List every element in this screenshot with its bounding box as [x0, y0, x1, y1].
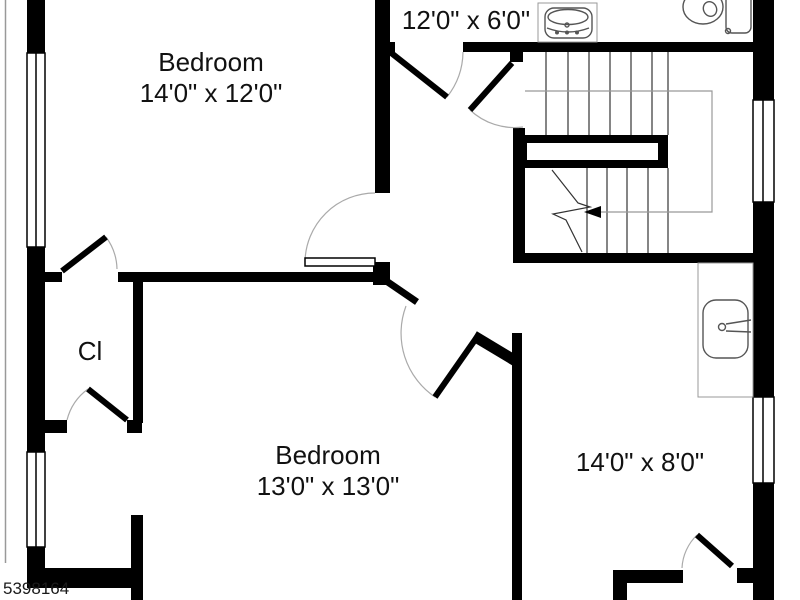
room-dimensions: 14'0" x 12'0"	[140, 78, 283, 109]
closet-top-door-arc	[106, 237, 117, 269]
vanity-sink-icon	[538, 3, 597, 42]
room-label-bedroom-bottom: Bedroom 13'0" x 13'0"	[257, 440, 400, 502]
stair-door	[470, 63, 512, 110]
room-label-bath-top: 12'0" x 6'0"	[402, 5, 530, 36]
room-right-door-arc	[682, 535, 697, 568]
room-name: Bedroom	[257, 440, 400, 471]
closet-bottom-door	[88, 389, 127, 420]
room-dimensions: 12'0" x 6'0"	[402, 5, 530, 36]
bedroom-top-door	[305, 258, 375, 266]
closet-top-door	[62, 237, 106, 271]
hall-door	[435, 337, 477, 397]
room-name: Bedroom	[140, 47, 283, 78]
bath-door-arc	[447, 52, 463, 97]
closet-bottom-door-arc	[67, 389, 88, 420]
bedroom-top-door-arc	[305, 193, 375, 262]
room-dimensions: 13'0" x 13'0"	[257, 471, 400, 502]
room-right-door	[697, 535, 732, 566]
room-label-closet: Cl	[78, 336, 103, 367]
floor-plan: Bedroom 14'0" x 12'0" 12'0" x 6'0" Cl Be…	[0, 0, 800, 600]
floor-plan-drawing	[0, 0, 800, 600]
stair-break-line	[552, 170, 590, 252]
bedroom-bottom-door	[376, 274, 417, 302]
room-dimensions: 14'0" x 8'0"	[576, 447, 704, 478]
bath-door	[390, 52, 447, 97]
room-label-room-right: 14'0" x 8'0"	[576, 447, 704, 478]
room-label-bedroom-top: Bedroom 14'0" x 12'0"	[140, 47, 283, 109]
stair-door-arc	[470, 110, 523, 128]
bathroom-sink-icon	[698, 263, 753, 397]
hall-door-arc	[401, 306, 435, 397]
toilet-icon	[683, 0, 751, 34]
room-name: Cl	[78, 336, 103, 367]
listing-id-watermark: 5398164	[3, 580, 69, 597]
